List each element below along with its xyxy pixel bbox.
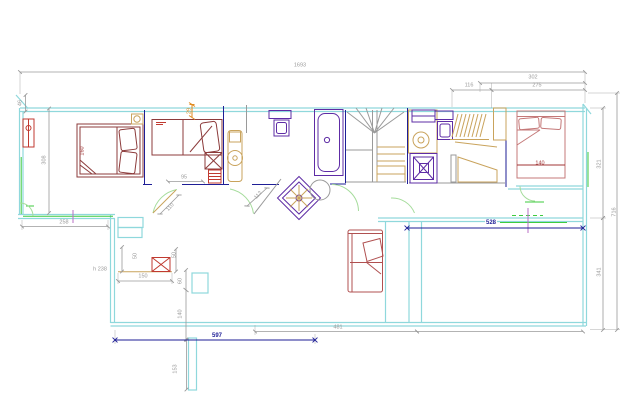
wc-bowl [228,151,243,166]
corridor-wc [228,111,292,182]
bathtub-drain [324,137,329,142]
windows-doors [19,149,590,233]
cabinet [494,108,507,140]
pillow [119,151,137,174]
closet-hangers [450,114,497,147]
sink-counter [435,111,453,120]
primary-dimension-lines [113,226,586,343]
stair-post [373,128,378,182]
understair-storage [458,157,497,182]
terrace-step-box [118,228,142,238]
staircase [346,108,406,182]
central-bathroom [278,110,344,220]
sofa [348,230,383,292]
terrace-step-box [118,218,143,228]
washing-machine [413,132,429,148]
pillow [119,128,137,151]
pillow [541,117,562,129]
door-swing [230,189,254,214]
floor-plan-canvas: 1693302116275463081602995110112258h 2385… [0,0,640,420]
garden-stair-stub [189,338,197,390]
chimney-flue [127,242,132,272]
single-bedroom [152,120,222,184]
sofa-cushion [363,239,383,262]
door-swing [391,198,415,213]
winder-treads [346,108,404,150]
double-bed [77,124,143,177]
planter-box [192,273,208,293]
master-bedroom [23,114,143,177]
shower-drain-star [286,185,312,211]
floor-plan-drawing [0,0,640,420]
right-bedroom [517,111,565,178]
right-bathroom [409,108,507,183]
partition-panel [451,155,456,182]
corner-chamfer-topleft [16,95,28,109]
pillow [519,117,540,130]
straight-treads [377,147,405,182]
living-area [118,230,383,292]
exterior-walls [16,95,591,390]
sink-counter-fill [437,113,445,118]
door-swing [332,185,359,212]
